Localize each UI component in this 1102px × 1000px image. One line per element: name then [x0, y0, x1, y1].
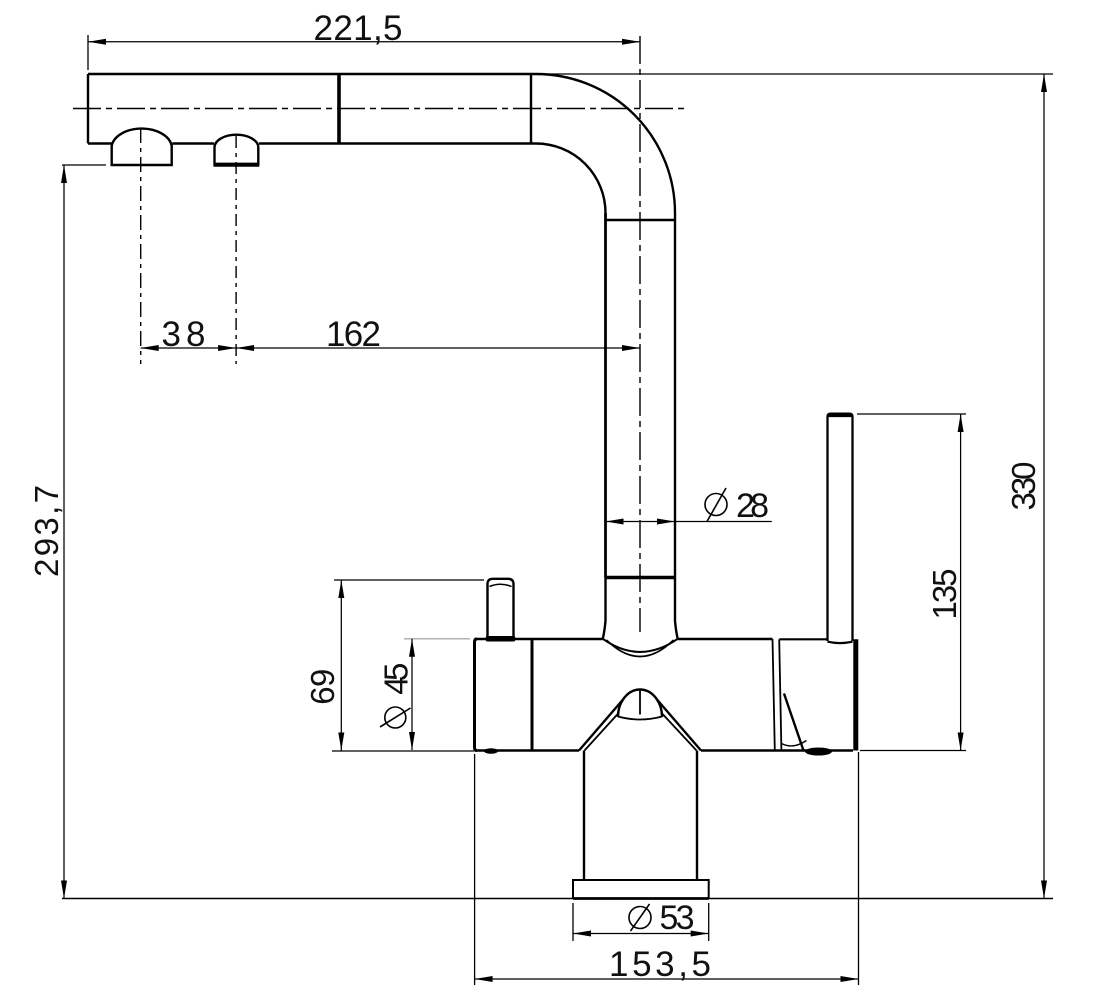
- svg-text:69: 69: [304, 669, 341, 705]
- svg-text:153,5: 153,5: [609, 945, 711, 984]
- svg-text:293,7: 293,7: [28, 485, 65, 577]
- svg-text:53: 53: [660, 899, 695, 937]
- svg-text:221,5: 221,5: [314, 9, 403, 48]
- svg-text:45: 45: [378, 663, 415, 695]
- svg-text:28: 28: [736, 487, 769, 525]
- svg-text:162: 162: [326, 315, 381, 354]
- svg-text:135: 135: [926, 569, 963, 620]
- svg-text:330: 330: [1005, 462, 1042, 511]
